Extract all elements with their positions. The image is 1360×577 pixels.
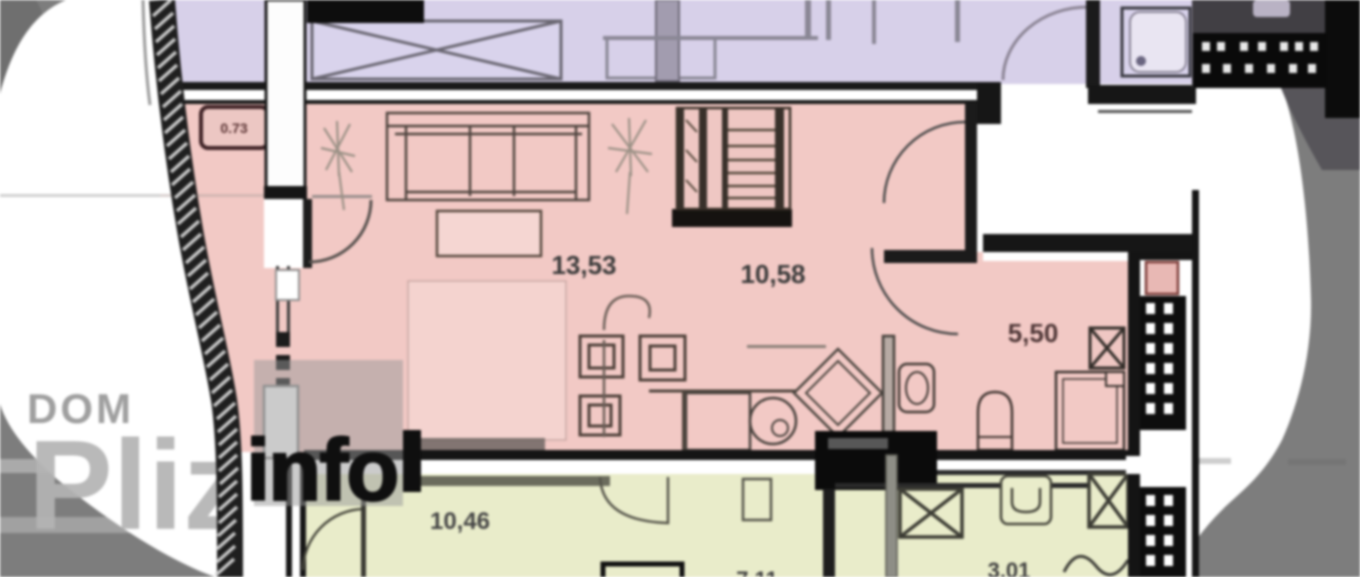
svg-text:10,46: 10,46 xyxy=(430,508,490,535)
svg-text:0.73: 0.73 xyxy=(220,120,247,136)
svg-text:info: info xyxy=(246,422,397,519)
svg-text:7,11: 7,11 xyxy=(736,567,778,577)
svg-text:5,50: 5,50 xyxy=(1008,318,1059,348)
svg-text:Pliz: Pliz xyxy=(28,414,247,556)
svg-text:3,01: 3,01 xyxy=(988,558,1031,577)
svg-text:13,53: 13,53 xyxy=(551,250,616,280)
svg-text:10,58: 10,58 xyxy=(740,259,805,289)
